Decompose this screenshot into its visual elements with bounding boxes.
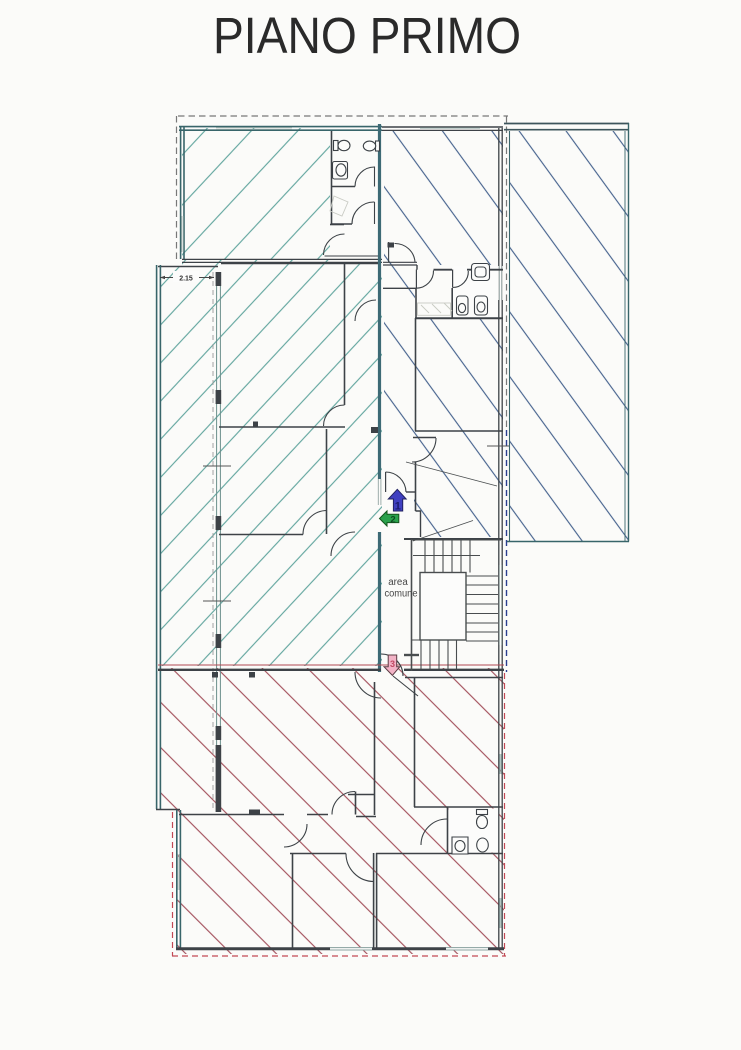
svg-text:PIANO PRIMO: PIANO PRIMO (213, 7, 521, 64)
svg-text:3: 3 (390, 659, 395, 669)
svg-text:1: 1 (395, 501, 401, 513)
svg-text:2: 2 (390, 515, 395, 526)
svg-text:comune: comune (385, 589, 418, 600)
svg-text:area: area (388, 577, 408, 588)
svg-text:2.15: 2.15 (179, 276, 193, 283)
